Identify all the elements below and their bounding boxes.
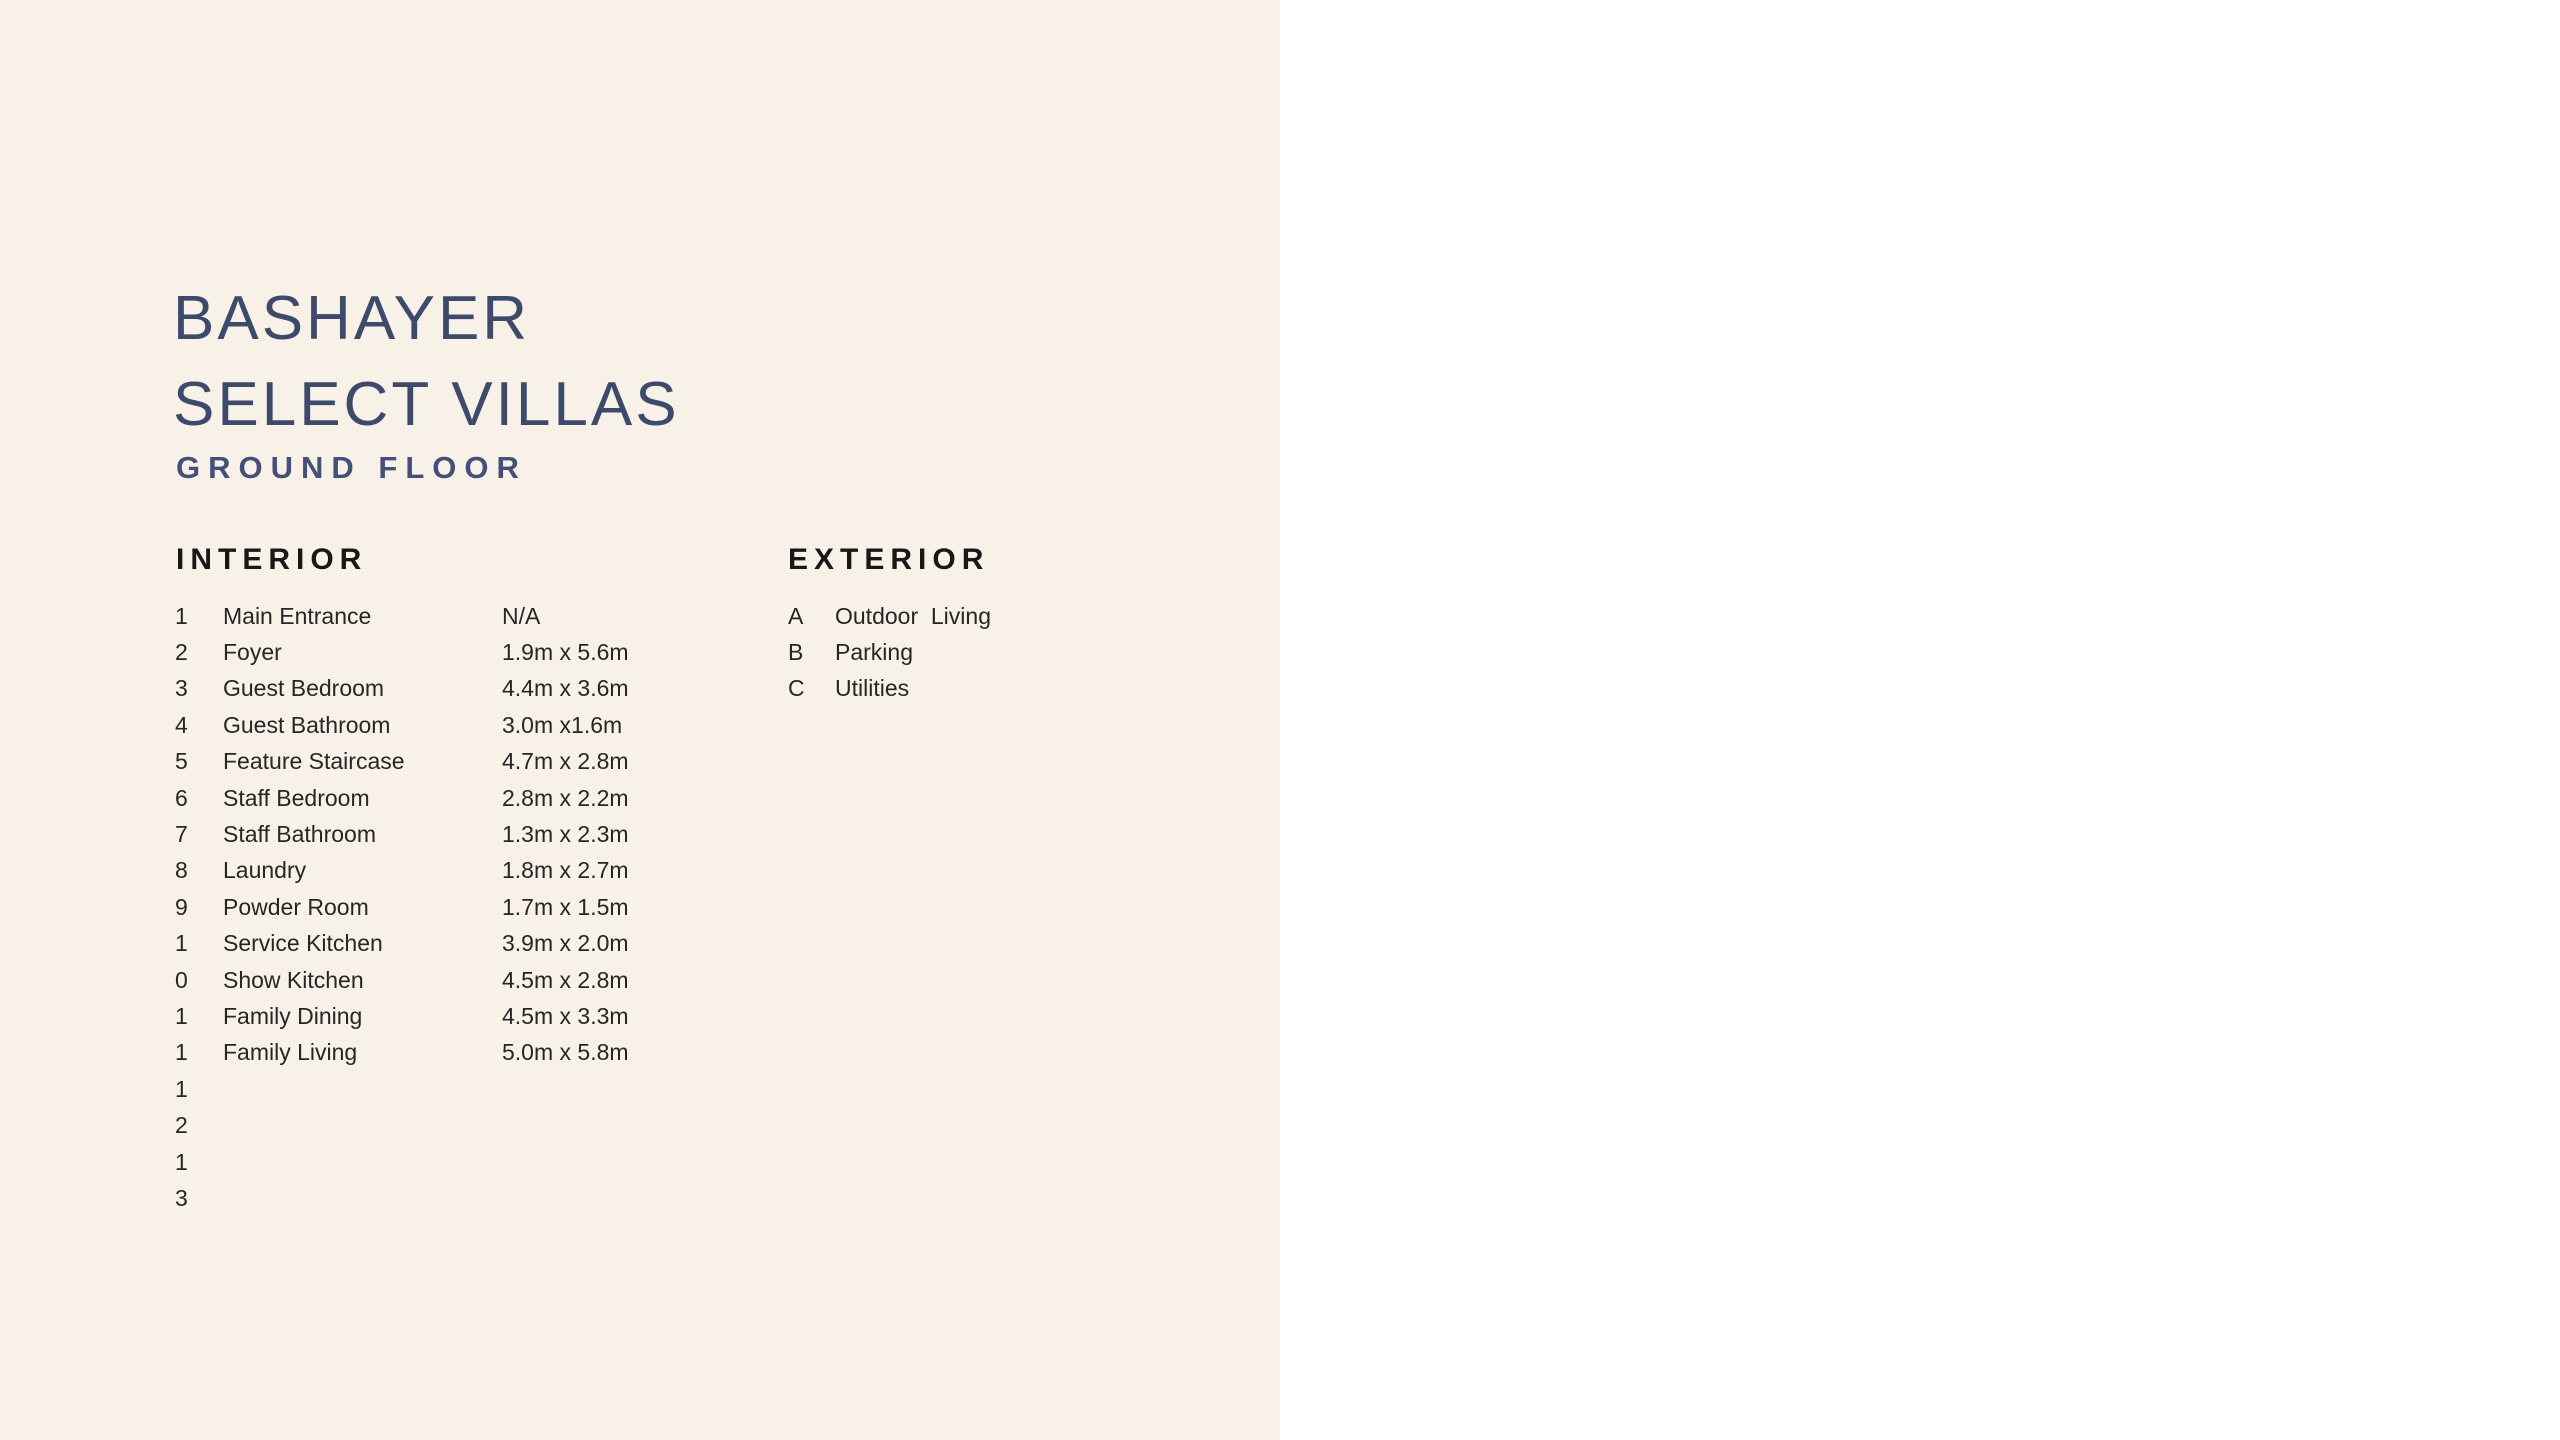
legend-row-letter: B [788,639,835,666]
legend-row-dimension: 1.3m x 2.3m [502,821,629,848]
legend-row-name: Guest Bathroom [223,712,502,739]
brochure-page: BASHAYER SELECT VILLAS GROUND FLOOR INTE… [0,0,2560,1440]
interior-heading: INTERIOR [176,543,367,577]
legend-row-number: 3 [175,1185,223,1212]
legend-row-number: 1 [175,1149,223,1176]
legend-row-name: Staff Bedroom [223,785,502,812]
interior-legend: 1 Main Entrance N/A 2 Foyer 1.9m x 5.6m … [175,598,735,1217]
legend-row-dimension: N/A [502,603,540,630]
legend-row-name: Main Entrance [223,603,502,630]
legend-row-number: 1 [175,603,223,630]
legend-row-dimension: 5.0m x 5.8m [502,1039,629,1066]
legend-row: C Utilities [788,671,1208,707]
legend-row-name: Family Dining [223,1003,502,1030]
legend-row: 1 Service Kitchen 3.9m x 2.0m [175,926,735,962]
plan-panel: 1 2 3 4 5 6 7 8 9 10 11 12 13 A B C C [1280,0,2560,1440]
legend-row-letter: C [788,675,835,702]
legend-row-name: Feature Staircase [223,748,502,775]
floor-subtitle: GROUND FLOOR [176,450,527,486]
legend-row-dimension: 3.0m x1.6m [502,712,622,739]
legend-row: 8 Laundry 1.8m x 2.7m [175,853,735,889]
legend-row: 7 Staff Bathroom 1.3m x 2.3m [175,816,735,852]
legend-row-number: 1 [175,1076,223,1103]
legend-row-dimension: 1.7m x 1.5m [502,894,629,921]
legend-row: 1 Family Living 5.0m x 5.8m [175,1035,735,1071]
legend-row-name: Outdoor Living [835,603,1114,630]
exterior-heading: EXTERIOR [788,543,989,577]
legend-row: 1 Main Entrance N/A [175,598,735,634]
info-panel: BASHAYER SELECT VILLAS GROUND FLOOR INTE… [0,0,1280,1440]
page-title-line2: SELECT VILLAS [173,362,680,448]
legend-row: 1 Family Dining 4.5m x 3.3m [175,998,735,1034]
legend-row-number: 6 [175,785,223,812]
legend-row-number: 9 [175,894,223,921]
legend-row-number: 8 [175,857,223,884]
legend-row-number: 2 [175,639,223,666]
page-title: BASHAYER SELECT VILLAS [173,276,680,448]
legend-row-number: 2 [175,1112,223,1139]
legend-row-name: Guest Bedroom [223,675,502,702]
legend-row-dimension: 2.8m x 2.2m [502,785,629,812]
legend-row-name: Show Kitchen [223,967,502,994]
legend-row: A Outdoor Living [788,598,1208,634]
legend-row-name: Foyer [223,639,502,666]
legend-row-number: 1 [175,1003,223,1030]
legend-row: B Parking [788,634,1208,670]
legend-row-number: 7 [175,821,223,848]
legend-row-name: Service Kitchen [223,930,502,957]
legend-row-name: Laundry [223,857,502,884]
legend-row-name: Parking [835,639,1114,666]
legend-row: 2 [175,1107,735,1143]
legend-row: 3 Guest Bedroom 4.4m x 3.6m [175,671,735,707]
legend-row-letter: A [788,603,835,630]
legend-row-name: Utilities [835,675,1114,702]
legend-row: 1 [175,1071,735,1107]
legend-row-number: 0 [175,967,223,994]
legend-row-dimension: 1.8m x 2.7m [502,857,629,884]
legend-row-name: Family Living [223,1039,502,1066]
legend-row-number: 5 [175,748,223,775]
legend-row: 9 Powder Room 1.7m x 1.5m [175,889,735,925]
legend-row-dimension: 4.5m x 3.3m [502,1003,629,1030]
legend-row: 5 Feature Staircase 4.7m x 2.8m [175,744,735,780]
legend-row: 1 [175,1144,735,1180]
legend-row-name: Powder Room [223,894,502,921]
legend-row-dimension: 4.4m x 3.6m [502,675,629,702]
legend-row-dimension: 4.7m x 2.8m [502,748,629,775]
legend-row-number: 3 [175,675,223,702]
exterior-legend: A Outdoor Living B Parking C Utilities [788,598,1208,707]
legend-row: 3 [175,1180,735,1216]
legend-row-dimension: 1.9m x 5.6m [502,639,629,666]
legend-row-number: 1 [175,1039,223,1066]
legend-row: 0 Show Kitchen 4.5m x 2.8m [175,962,735,998]
legend-row: 2 Foyer 1.9m x 5.6m [175,634,735,670]
legend-row-number: 1 [175,930,223,957]
page-title-line1: BASHAYER [173,276,680,362]
legend-row-number: 4 [175,712,223,739]
legend-row: 6 Staff Bedroom 2.8m x 2.2m [175,780,735,816]
legend-row-name: Staff Bathroom [223,821,502,848]
legend-row-dimension: 4.5m x 2.8m [502,967,629,994]
legend-row: 4 Guest Bathroom 3.0m x1.6m [175,707,735,743]
legend-row-dimension: 3.9m x 2.0m [502,930,629,957]
